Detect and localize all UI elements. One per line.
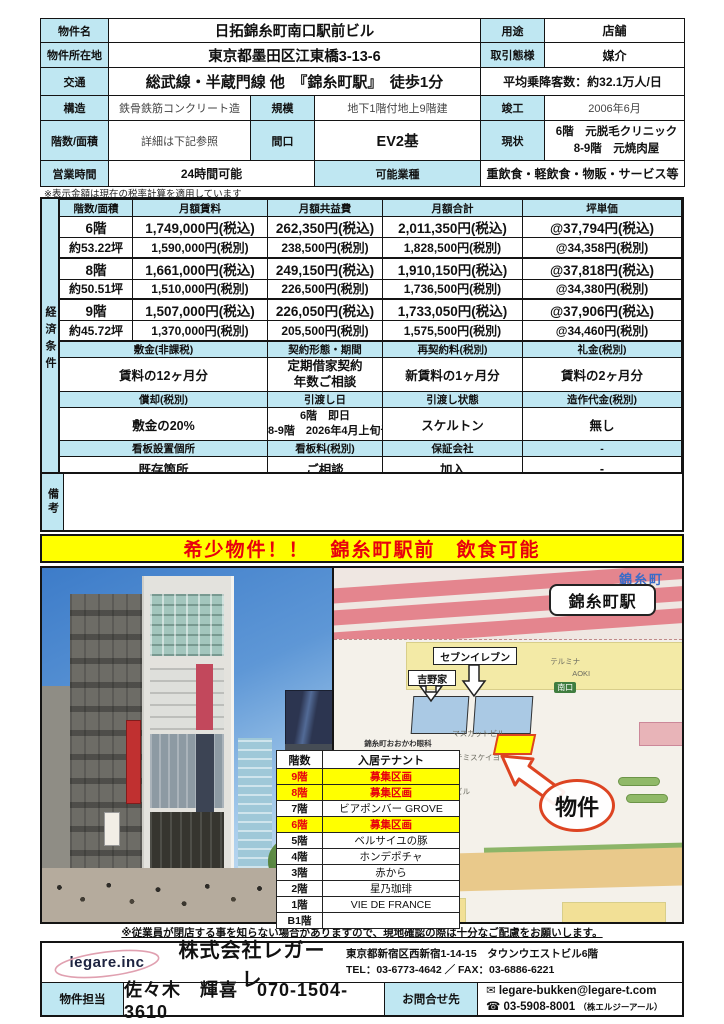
tenant-row-b1: B1階 bbox=[277, 913, 460, 929]
economic-conditions: 経済条件 階数/面積月額賃料 月額共益費月額合計 坪単価 6階1,749,000… bbox=[40, 197, 684, 483]
tenant-header-row: 階数 入居テナント bbox=[277, 751, 460, 769]
address-value: 東京都墨田区江東橋3-13-6 bbox=[109, 43, 481, 68]
map-property-mark: 物件 bbox=[539, 779, 615, 832]
map-arrow-yoshinoya bbox=[420, 686, 442, 701]
economic-side-label: 経済条件 bbox=[42, 199, 59, 481]
rent-row-8f-incl: 8階1,661,000円(税込) 249,150円(税込)1,910,150円(… bbox=[60, 258, 682, 280]
built-value: 2006年6月 bbox=[545, 96, 685, 121]
built-label: 竣工 bbox=[481, 96, 545, 121]
company-logo: legare.inc bbox=[42, 954, 172, 971]
passengers-value: 平均乗降客数：約32.1万人/日 bbox=[481, 68, 685, 96]
tenant-row-6f: 6階募集区画 bbox=[277, 817, 460, 833]
contact-email[interactable]: legare-bukken@legare-t.com bbox=[499, 985, 657, 997]
tenant-row-9f: 9階募集区画 bbox=[277, 769, 460, 785]
contract-value: 定期借家契約年数ご相談 bbox=[268, 357, 383, 392]
rent-row-8f-excl: 約50.51坪1,510,000円(税別) 226,500円(税別)1,736,… bbox=[60, 279, 682, 299]
structure-value: 鉄骨鉄筋コンクリート造 bbox=[109, 96, 251, 121]
deposit-header-row: 敷金(非課税) 契約形態・期間 再契約料(税別) 礼金(税別) bbox=[60, 341, 682, 358]
company-telfax: TEL：03-6773-4642 ／ FAX：03-6886-6221 bbox=[346, 963, 682, 979]
economic-table: 階数/面積月額賃料 月額共益費月額合計 坪単価 6階1,749,000円(税込)… bbox=[59, 199, 682, 481]
use-label: 用途 bbox=[481, 19, 545, 43]
photo-main-building: 星乃珈琲店 bbox=[142, 576, 234, 898]
tenant-row-5f: 5階ベルサイユの豚 bbox=[277, 833, 460, 849]
frontage-value: EV2基 bbox=[315, 121, 481, 161]
phone-icon: ☎ bbox=[486, 1001, 504, 1013]
access-label: 交通 bbox=[41, 68, 109, 96]
contact-block: ✉ legare-bukken@legare-t.com ☎ 03-5908-8… bbox=[478, 983, 682, 1015]
deal-value: 媒介 bbox=[545, 43, 685, 68]
remarks-box bbox=[64, 474, 682, 530]
tenant-row-4f: 4階ホンデポチャ bbox=[277, 849, 460, 865]
footer-contact-row: 物件担当 佐々木 輝喜 070-1504-3610 お問合せ先 ✉ legare… bbox=[42, 983, 682, 1015]
contact-email-line: ✉ legare-bukken@legare-t.com bbox=[486, 983, 656, 999]
highlight-banner: 希少物件！！ 錦糸町駅前 飲食可能 bbox=[40, 534, 684, 563]
scale-value: 地下1階付地上9階建 bbox=[315, 96, 481, 121]
access-value: 総武線・半蔵門線 他 『錦糸町駅』 徒歩1分 bbox=[109, 68, 481, 96]
business-value: 重飲食・軽飲食・物販・サービス等 bbox=[481, 161, 685, 187]
frontage-label: 間口 bbox=[251, 121, 315, 161]
footer: legare.inc 株式会社レガーレ 東京都新宿区西新宿1-14-15 タウン… bbox=[40, 941, 684, 1017]
tenant-table: 階数 入居テナント 9階募集区画 8階募集区画 7階ビアポンバー GROVE 6… bbox=[276, 750, 460, 929]
photo-billboard bbox=[285, 690, 332, 746]
handover-date-value: 6階 即日8-9階 2026年4月上旬予定 bbox=[268, 408, 383, 441]
economic-header-row: 階数/面積月額賃料 月額共益費月額合計 坪単価 bbox=[60, 200, 682, 217]
photo-band3 bbox=[150, 812, 224, 868]
amortization-value-row: 敷金の20% 6階 即日8-9階 2026年4月上旬予定 スケルトン 無し bbox=[60, 408, 682, 441]
contact-phone-company: （株エルジーアール） bbox=[578, 1002, 662, 1012]
property-name-label: 物件名 bbox=[41, 19, 109, 43]
tenant-row-7f: 7階ビアポンバー GROVE bbox=[277, 801, 460, 817]
company-address-block: 東京都新宿区西新宿1-14-15 タウンウエストビル6階 TEL：03-6773… bbox=[332, 947, 682, 979]
tenant-row-3f: 3階赤から bbox=[277, 865, 460, 881]
current-line2: 8-9階 元焼肉屋 bbox=[549, 141, 684, 158]
contact-label: お問合せ先 bbox=[385, 983, 478, 1015]
deal-label: 取引態様 bbox=[481, 43, 545, 68]
floors-value: 詳細は下記参照 bbox=[109, 121, 251, 161]
staff-label: 物件担当 bbox=[42, 983, 124, 1015]
contact-phone: 03-5908-8001 bbox=[504, 1001, 576, 1013]
rent-row-6f-incl: 6階1,749,000円(税込) 262,350円(税込)2,011,350円(… bbox=[60, 217, 682, 238]
company-address: 東京都新宿区西新宿1-14-15 タウンウエストビル6階 bbox=[346, 947, 682, 963]
signage-header-row: 看板設置個所 看板料(税別) 保証会社 - bbox=[60, 441, 682, 457]
contact-phone-line: ☎ 03-5908-8001 （株エルジーアール） bbox=[486, 999, 663, 1015]
photo-small-sign bbox=[104, 812, 120, 846]
property-flyer-page: 物件名 日拓錦糸町南口駅前ビル 用途 店舗 物件所在地 東京都墨田区江東橋3-1… bbox=[0, 0, 724, 1024]
scale-label: 規模 bbox=[251, 96, 315, 121]
current-value: 6階 元脱毛クリニック 8-9階 元焼肉屋 bbox=[545, 121, 685, 161]
hours-label: 営業時間 bbox=[41, 161, 109, 187]
rent-row-6f-excl: 約53.22坪1,590,000円(税別) 238,500円(税別)1,828,… bbox=[60, 238, 682, 258]
structure-label: 構造 bbox=[41, 96, 109, 121]
business-label: 可能業種 bbox=[315, 161, 481, 187]
tenant-row-8f: 8階募集区画 bbox=[277, 785, 460, 801]
address-label: 物件所在地 bbox=[41, 43, 109, 68]
rent-row-9f-excl: 約45.72坪1,370,000円(税別) 205,500円(税別)1,575,… bbox=[60, 321, 682, 341]
use-value: 店舗 bbox=[545, 19, 685, 43]
email-icon: ✉ bbox=[486, 985, 499, 997]
staff-name-phone: 佐々木 輝喜 070-1504-3610 bbox=[124, 983, 385, 1015]
property-info-table: 物件名 日拓錦糸町南口駅前ビル 用途 店舗 物件所在地 東京都墨田区江東橋3-1… bbox=[40, 18, 685, 187]
remarks-section: 備考 bbox=[40, 472, 684, 532]
tenant-row-2f: 2階星乃珈琲 bbox=[277, 881, 460, 897]
property-name: 日拓錦糸町南口駅前ビル bbox=[109, 19, 481, 43]
deposit-value-row: 賃料の12ヶ月分 定期借家契約年数ご相談 新賃料の1ヶ月分 賃料の2ヶ月分 bbox=[60, 357, 682, 392]
floors-label: 階数/面積 bbox=[41, 121, 109, 161]
current-label: 現状 bbox=[481, 121, 545, 161]
remarks-side-label: 備考 bbox=[42, 474, 64, 530]
current-line1: 6階 元脱毛クリニック bbox=[549, 124, 684, 141]
logo-swirl bbox=[50, 945, 164, 983]
hours-value: 24時間可能 bbox=[109, 161, 315, 187]
tenant-row-1f: 1階VIE DE FRANCE bbox=[277, 897, 460, 913]
photo-pink-banner bbox=[196, 664, 213, 730]
photo-red-sign bbox=[126, 720, 141, 804]
amortization-header-row: 償却(税別) 引渡し日 引渡し状態 造作代金(税別) bbox=[60, 392, 682, 408]
photo-top-glass bbox=[150, 594, 224, 656]
rent-row-9f-incl: 9階1,507,000円(税込) 226,050円(税込)1,733,050円(… bbox=[60, 299, 682, 321]
map-arrow-seven bbox=[463, 665, 485, 696]
photo-glass-tower bbox=[238, 738, 272, 868]
